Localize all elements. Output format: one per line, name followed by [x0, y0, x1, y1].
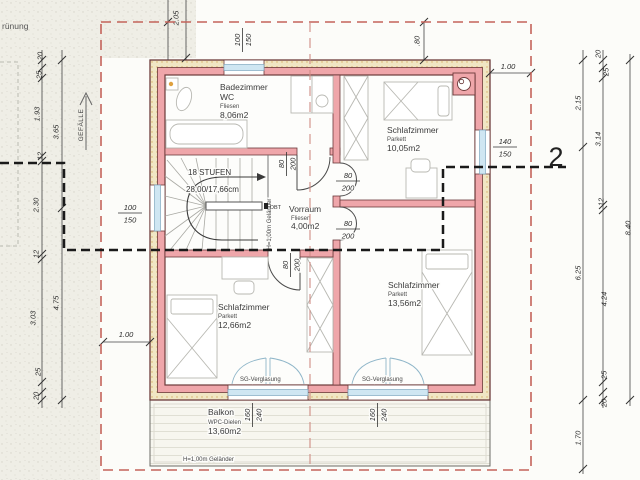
svg-text:10,05m2: 10,05m2 — [387, 143, 420, 153]
svg-text:20: 20 — [600, 398, 609, 408]
svg-text:80: 80 — [344, 171, 353, 180]
glazing-label-left: SG-Verglasung — [240, 377, 281, 383]
svg-text:240: 240 — [380, 408, 389, 422]
greening-label: rünung — [2, 21, 29, 31]
svg-text:Schlafzimmer: Schlafzimmer — [387, 125, 439, 135]
svg-text:2.15: 2.15 — [574, 95, 583, 111]
svg-text:160: 160 — [368, 408, 377, 421]
bedroom-bottom-right-furniture — [422, 250, 472, 355]
svg-text:12: 12 — [32, 249, 41, 258]
svg-text:140: 140 — [499, 137, 512, 146]
svg-text:DBT: DBT — [270, 205, 282, 211]
svg-text:200: 200 — [341, 232, 355, 241]
svg-text:200: 200 — [341, 184, 355, 193]
svg-text:20: 20 — [32, 391, 41, 401]
svg-text:200: 200 — [293, 258, 302, 272]
svg-text:1.93: 1.93 — [33, 106, 42, 121]
balcony-glazing-left — [228, 385, 308, 400]
dim-top: 2.05 — [172, 10, 181, 26]
svg-text:Badezimmer: Badezimmer — [220, 82, 268, 92]
floorplan-canvas: rünung GEFÄLLE — [0, 0, 640, 480]
svg-text:20: 20 — [36, 51, 45, 61]
svg-text:Balkon: Balkon — [208, 407, 234, 417]
svg-text:80: 80 — [281, 260, 290, 269]
stair-rail-bar — [206, 202, 262, 210]
svg-text:4.24: 4.24 — [600, 292, 609, 307]
stair-label-line2: 28,00/17,66cm — [186, 185, 239, 194]
window-left — [150, 185, 165, 231]
svg-text:Schlafzimmer: Schlafzimmer — [388, 280, 440, 290]
svg-text:WC: WC — [220, 92, 234, 102]
glazing-label-right: SG-Verglasung — [362, 377, 403, 383]
svg-text:12,66m2: 12,66m2 — [218, 320, 251, 330]
svg-text:200: 200 — [289, 157, 298, 171]
dim-roof-left: 1.00 — [119, 330, 134, 339]
svg-text:Schlafzimmer: Schlafzimmer — [218, 302, 270, 312]
dim-roof-top: .80 — [413, 35, 422, 46]
window-right-size: 140 150 — [493, 137, 517, 159]
svg-text:6.25: 6.25 — [574, 265, 583, 280]
floorplan-drawing: rünung GEFÄLLE — [0, 0, 640, 480]
svg-text:1.70: 1.70 — [574, 430, 583, 445]
svg-text:12: 12 — [36, 151, 45, 160]
window-left-size: 100 150 — [118, 203, 142, 225]
svg-text:13,60m2: 13,60m2 — [208, 426, 241, 436]
svg-text:3.14: 3.14 — [594, 132, 603, 147]
svg-text:25: 25 — [602, 67, 611, 77]
svg-text:80: 80 — [344, 219, 353, 228]
svg-text:240: 240 — [255, 408, 264, 422]
svg-text:4.75: 4.75 — [52, 295, 61, 310]
svg-text:8,06m2: 8,06m2 — [220, 110, 249, 120]
svg-text:25: 25 — [35, 70, 44, 80]
window-top-size: 100 150 — [233, 28, 253, 52]
chimney — [453, 73, 475, 95]
svg-text:150: 150 — [244, 33, 253, 46]
stair-label-line1: 18 STUFEN — [188, 168, 231, 177]
balcony-glazing-right — [348, 385, 428, 400]
svg-text:2.30: 2.30 — [32, 197, 41, 213]
svg-text:12: 12 — [597, 197, 606, 206]
slope-label: GEFÄLLE — [77, 108, 85, 141]
svg-text:25: 25 — [34, 367, 43, 377]
svg-text:160: 160 — [243, 408, 252, 421]
section-label: 2 — [548, 142, 563, 172]
svg-text:Vorraum: Vorraum — [289, 204, 321, 214]
svg-text:100: 100 — [124, 203, 137, 212]
dim-roof-right: 1.00 — [501, 62, 516, 71]
svg-text:8.40: 8.40 — [624, 220, 633, 235]
svg-text:100: 100 — [233, 33, 242, 46]
svg-text:3.03: 3.03 — [29, 310, 38, 325]
svg-text:80: 80 — [277, 159, 286, 168]
svg-text:3.65: 3.65 — [52, 124, 61, 139]
svg-text:20: 20 — [594, 49, 603, 59]
svg-text:150: 150 — [124, 216, 137, 225]
svg-text:150: 150 — [499, 150, 512, 159]
svg-text:25: 25 — [600, 370, 609, 380]
window-top — [224, 60, 264, 75]
svg-text:H=1,00m Geländer: H=1,00m Geländer — [183, 457, 234, 463]
svg-text:13,56m2: 13,56m2 — [388, 298, 421, 308]
svg-text:4,00m2: 4,00m2 — [291, 221, 320, 231]
